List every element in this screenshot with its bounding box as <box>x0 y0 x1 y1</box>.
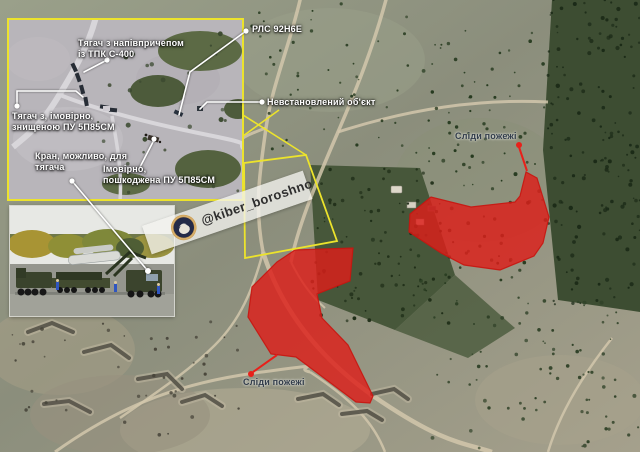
marker-dot <box>259 99 264 104</box>
fire-leader-left <box>253 355 277 372</box>
label-truck-destroyed: Тягач з, імовірно, знищеною ПУ 5П85СМ <box>12 111 115 133</box>
fire-polygon-right <box>409 172 549 270</box>
tree-speckles <box>547 0 640 305</box>
fire-marker-dot-right <box>516 142 522 148</box>
label-fire-right: Сліди пожежі <box>455 131 517 142</box>
tree-speckles <box>431 299 640 449</box>
kiber-boroshno-badge-icon <box>167 211 200 244</box>
tree-speckles <box>311 168 454 325</box>
label-damaged-pu: Імовірно, пошкоджена ПУ 5П85СМ <box>103 164 215 186</box>
tree-speckles <box>12 320 240 436</box>
tree-speckles <box>414 30 548 299</box>
label-unknown-object: Невстановлений об'єкт <box>267 97 375 108</box>
fire-leader-right <box>519 147 527 171</box>
annotated-satellite-map: @kiber_boroshno Тягач з напівпричепом із… <box>0 0 640 452</box>
label-fire-left: Сліди пожежі <box>243 377 305 388</box>
label-truck-s400: Тягач з напівпричепом із ТПК С-400 <box>78 38 184 60</box>
forest-patches <box>310 0 640 358</box>
revetments <box>28 323 408 420</box>
projection-line-lower <box>243 110 279 136</box>
map-buildings <box>391 186 436 225</box>
projection-line-upper <box>243 115 306 155</box>
label-radar: РЛС 92Н6Е <box>252 24 302 35</box>
marker-dot <box>243 28 248 33</box>
